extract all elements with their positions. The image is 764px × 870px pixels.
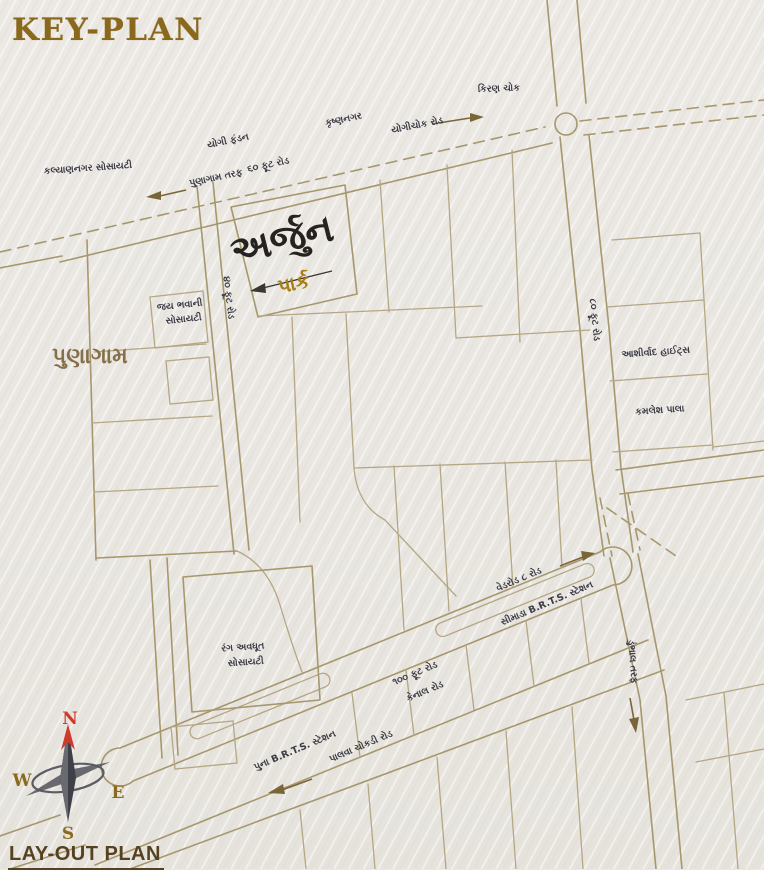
plot-line: [466, 645, 474, 710]
plot-line: [613, 445, 713, 452]
road-palwa-2: [130, 670, 664, 869]
road-right-diag-2: [620, 476, 764, 494]
label-puna-brts-station: પુના B.R.T.S. સ્ટેશન: [251, 725, 339, 773]
layout-plan-title: LAY-OUT PLAN: [8, 843, 164, 870]
label-rang-avdhut-1: રંગ અવધૂત: [221, 639, 266, 655]
compass-east-label: E: [112, 783, 125, 803]
label-ashirwad-heights: આશીર્વાદ હાઈટ્સ: [621, 343, 691, 362]
plot-line: [505, 462, 513, 588]
plot-line: [258, 306, 482, 316]
street-left-3: [94, 486, 218, 492]
road-vertical-top-1: [547, 0, 557, 106]
label-palwa-chokdi-road: પાલવા ચોકડી રોડ: [327, 725, 395, 765]
key-plan-sheet: KEY-PLAN: [0, 0, 764, 869]
arrow-punagam-west: [146, 190, 186, 200]
plot-line: [506, 731, 516, 869]
plot-line: [368, 784, 375, 869]
label-yogi-fundan: યોગી ફંડન: [206, 128, 251, 151]
label-eighty-ft-road: ૮૦ ફૂટ રોડ: [584, 298, 605, 343]
plot-line: [724, 692, 738, 869]
road-dumbhal-dash-2: [628, 494, 640, 550]
plot-line: [440, 464, 449, 611]
compass-south-label: S: [62, 824, 74, 843]
compass-north-label: N: [62, 709, 78, 729]
label-vedroad-8-road: વેડરોડ ૮ રોડ: [494, 562, 544, 594]
compass-rose: N W E S: [6, 708, 136, 843]
road-top-left: [0, 256, 62, 268]
compass-west-label: W: [11, 771, 32, 791]
plot-line: [300, 810, 306, 869]
street-bottomleft-1: [150, 560, 162, 758]
road-vertical-right-2: [589, 135, 633, 552]
label-punagam-region: પુણાગામ: [52, 344, 128, 369]
plot-line: [437, 757, 446, 869]
plot-line: [512, 150, 520, 342]
label-yogichowk-road: યોગીચોક રોડ: [390, 112, 445, 136]
plot-line: [346, 314, 456, 596]
road-vertical-right-1: [560, 137, 604, 556]
plot-line: [456, 330, 590, 338]
plot-line: [526, 621, 534, 686]
plot-line: [380, 180, 389, 312]
label-kamlesh-pala: કમલેશ પાલા: [635, 400, 686, 418]
plot-line: [447, 165, 456, 338]
plot-line: [612, 233, 700, 240]
label-krushnanagar: કૃષ્ણનગર: [324, 110, 364, 129]
brts-median-1: [434, 561, 597, 638]
plot-line: [700, 233, 713, 450]
plot-rang-avdhut: [183, 566, 320, 712]
arrow-palwa-southwest: [268, 779, 312, 794]
road-left-vertical: [87, 240, 96, 560]
label-rang-avdhut-2: સોસાયટી: [227, 653, 264, 670]
plot-line: [610, 374, 707, 381]
plot-line: [394, 466, 404, 630]
arrow-dumbhal-south: [629, 698, 639, 733]
road-dumbhal-2: [638, 554, 682, 869]
label-sixty-ft-road: ૬૦ ફૂટ રોડ: [246, 152, 292, 177]
label-kalyannagar-society: કલ્યાણનગર સોસાયટી: [43, 157, 132, 177]
plot-line: [607, 300, 704, 307]
plot-line: [572, 707, 583, 869]
street-left-4: [97, 551, 237, 558]
plot-line: [166, 357, 213, 404]
dashed-road-topright-2: [584, 115, 764, 135]
label-forty-ft-road: ૪૦ ફૂટ રોડ: [218, 275, 240, 321]
plot-line: [556, 460, 562, 568]
direction-arrows: [146, 113, 639, 794]
plot-line: [713, 441, 764, 447]
label-jay-bhavani-1: જય ભવાની: [156, 296, 203, 314]
label-arjun: અર્જુન: [226, 205, 338, 274]
label-kiran-chowk: કિરણ ચોક: [478, 80, 521, 95]
plot-line: [292, 317, 300, 522]
road-right-diag-1: [616, 450, 764, 470]
street-left-2: [92, 416, 212, 423]
roundabout: [555, 113, 577, 135]
road-vertical-top-2: [577, 0, 586, 103]
plot-line: [581, 599, 589, 663]
road-right-diag-dash: [607, 508, 676, 556]
label-punagam-taraf: પુણાગામ તરફ: [188, 167, 245, 189]
label-park: પાર્ક: [275, 268, 312, 298]
